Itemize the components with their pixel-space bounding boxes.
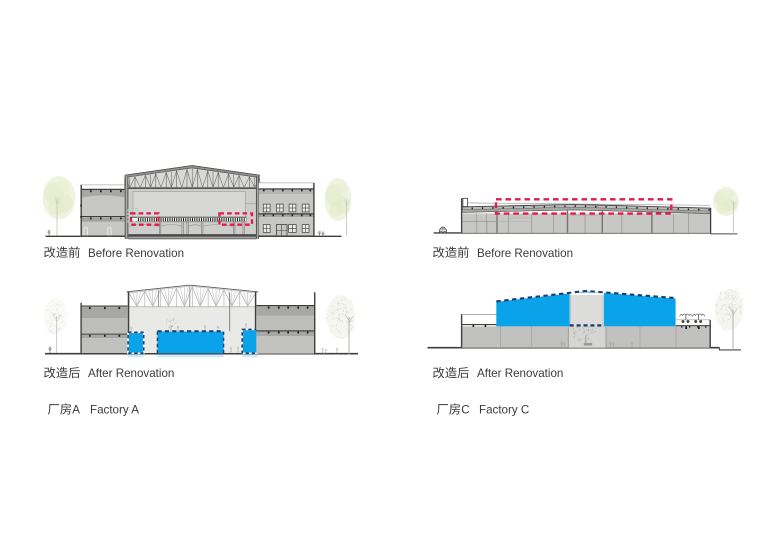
svg-text:Before Renovation: Before Renovation (88, 247, 184, 260)
svg-text:C: C (461, 404, 469, 417)
svg-text:A: A (72, 404, 80, 417)
svg-text:After Renovation: After Renovation (477, 367, 563, 380)
svg-text:Factory C: Factory C (479, 404, 529, 417)
svg-text:Before Renovation: Before Renovation (477, 247, 573, 260)
svg-text:Factory A: Factory A (90, 404, 139, 417)
svg-text:After Renovation: After Renovation (88, 367, 174, 380)
